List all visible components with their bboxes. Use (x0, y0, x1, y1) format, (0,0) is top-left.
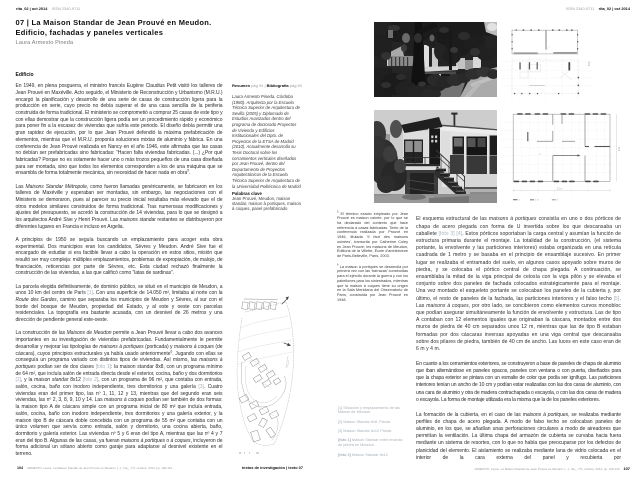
svg-text:5: 5 (557, 200, 559, 202)
svg-text:8 m: 8 m (618, 147, 621, 151)
svg-text:12 m: 12 m (557, 187, 562, 190)
svg-text:8 m: 8 m (587, 62, 591, 66)
svg-text:1: 1 (519, 200, 521, 202)
svg-text:2 m: 2 m (535, 200, 539, 202)
